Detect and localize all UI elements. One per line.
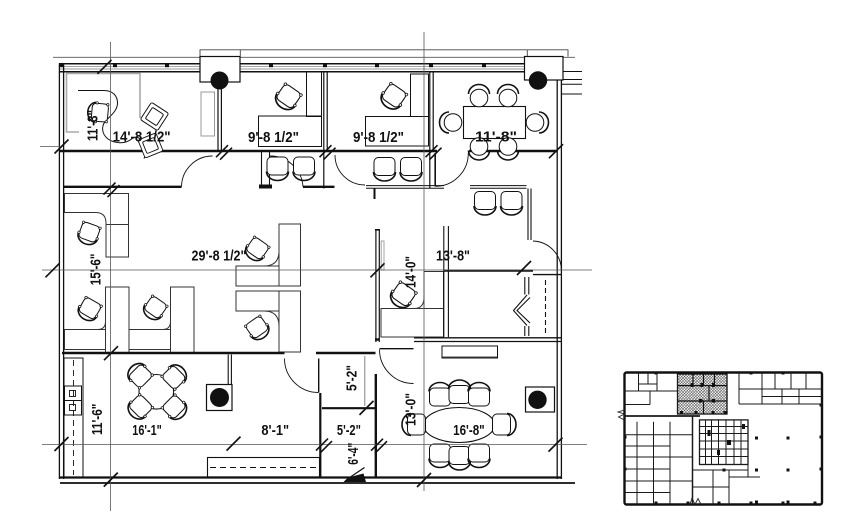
svg-text:11'-6": 11'-6" — [89, 404, 106, 435]
svg-text:16'-8": 16'-8" — [453, 422, 485, 439]
svg-text:9'-8 1/2": 9'-8 1/2" — [353, 129, 404, 146]
svg-text:29'-8 1/2": 29'-8 1/2" — [192, 248, 247, 265]
svg-text:15'-6": 15'-6" — [88, 254, 105, 286]
svg-text:13'-8": 13'-8" — [436, 248, 470, 265]
svg-text:5'-2": 5'-2" — [344, 365, 361, 391]
svg-text:6'-4": 6'-4" — [345, 443, 362, 465]
svg-text:5'-2": 5'-2" — [337, 422, 361, 439]
svg-text:14'-0": 14'-0" — [403, 256, 420, 288]
svg-text:8'-1": 8'-1" — [261, 422, 289, 439]
svg-text:11'-3": 11'-3" — [85, 110, 102, 141]
svg-text:11'-8": 11'-8" — [475, 129, 517, 146]
svg-text:14'-8 1/2": 14'-8 1/2" — [113, 129, 171, 146]
svg-text:9'-8 1/2": 9'-8 1/2" — [248, 129, 299, 146]
svg-text:13'-0": 13'-0" — [403, 393, 420, 426]
svg-text:16'-1": 16'-1" — [132, 422, 162, 439]
